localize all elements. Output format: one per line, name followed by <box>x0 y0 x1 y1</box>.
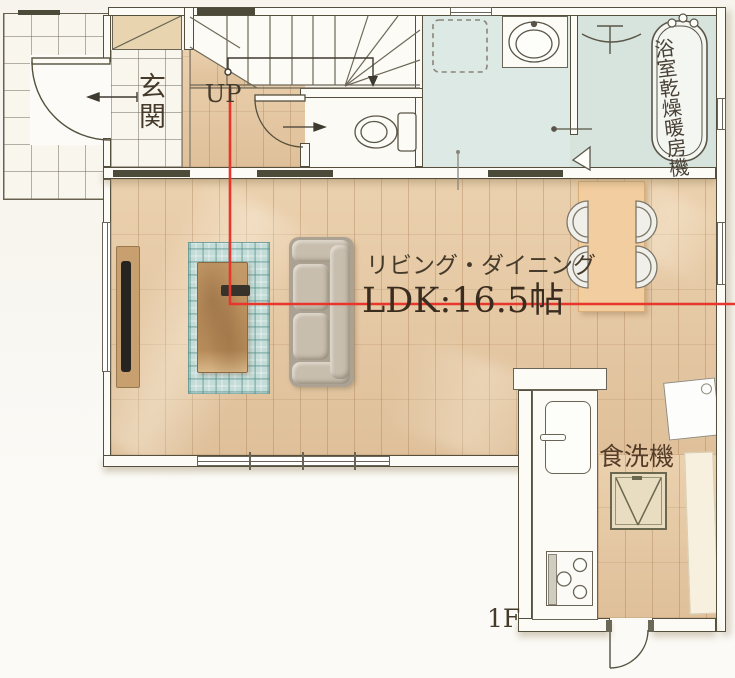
dishwasher-v-mark <box>616 476 661 525</box>
floor-plan-1f: UP 玄関 リビング・ダイニング LDK:16.5帖 浴室乾燥暖房機 食洗機 1… <box>0 0 735 678</box>
toilet-door <box>255 95 305 147</box>
floor-number-label: 1F <box>487 604 520 633</box>
stairs-up-label: UP <box>205 80 241 108</box>
kitchen-back-door <box>610 630 648 668</box>
shoe-storage-diagonal <box>113 16 181 49</box>
living-dining-size-label: LDK:16.5帖 <box>362 272 564 323</box>
dishwasher-label: 食洗機 <box>599 437 674 473</box>
toilet-fixture <box>355 113 416 151</box>
shower-fixture <box>582 26 641 54</box>
plan-linework <box>0 0 735 678</box>
bathroom-fold-door <box>552 127 592 170</box>
washroom-basin <box>509 22 559 63</box>
entrance-label: 玄関 <box>130 72 169 132</box>
stairs-treads <box>190 16 420 88</box>
washroom-door-edge-dot <box>456 150 460 154</box>
washing-machine-space <box>433 20 487 72</box>
toilet-direction-arrow <box>283 123 325 131</box>
entrance-step-edge <box>182 50 190 167</box>
cooktop-burners <box>557 559 587 599</box>
